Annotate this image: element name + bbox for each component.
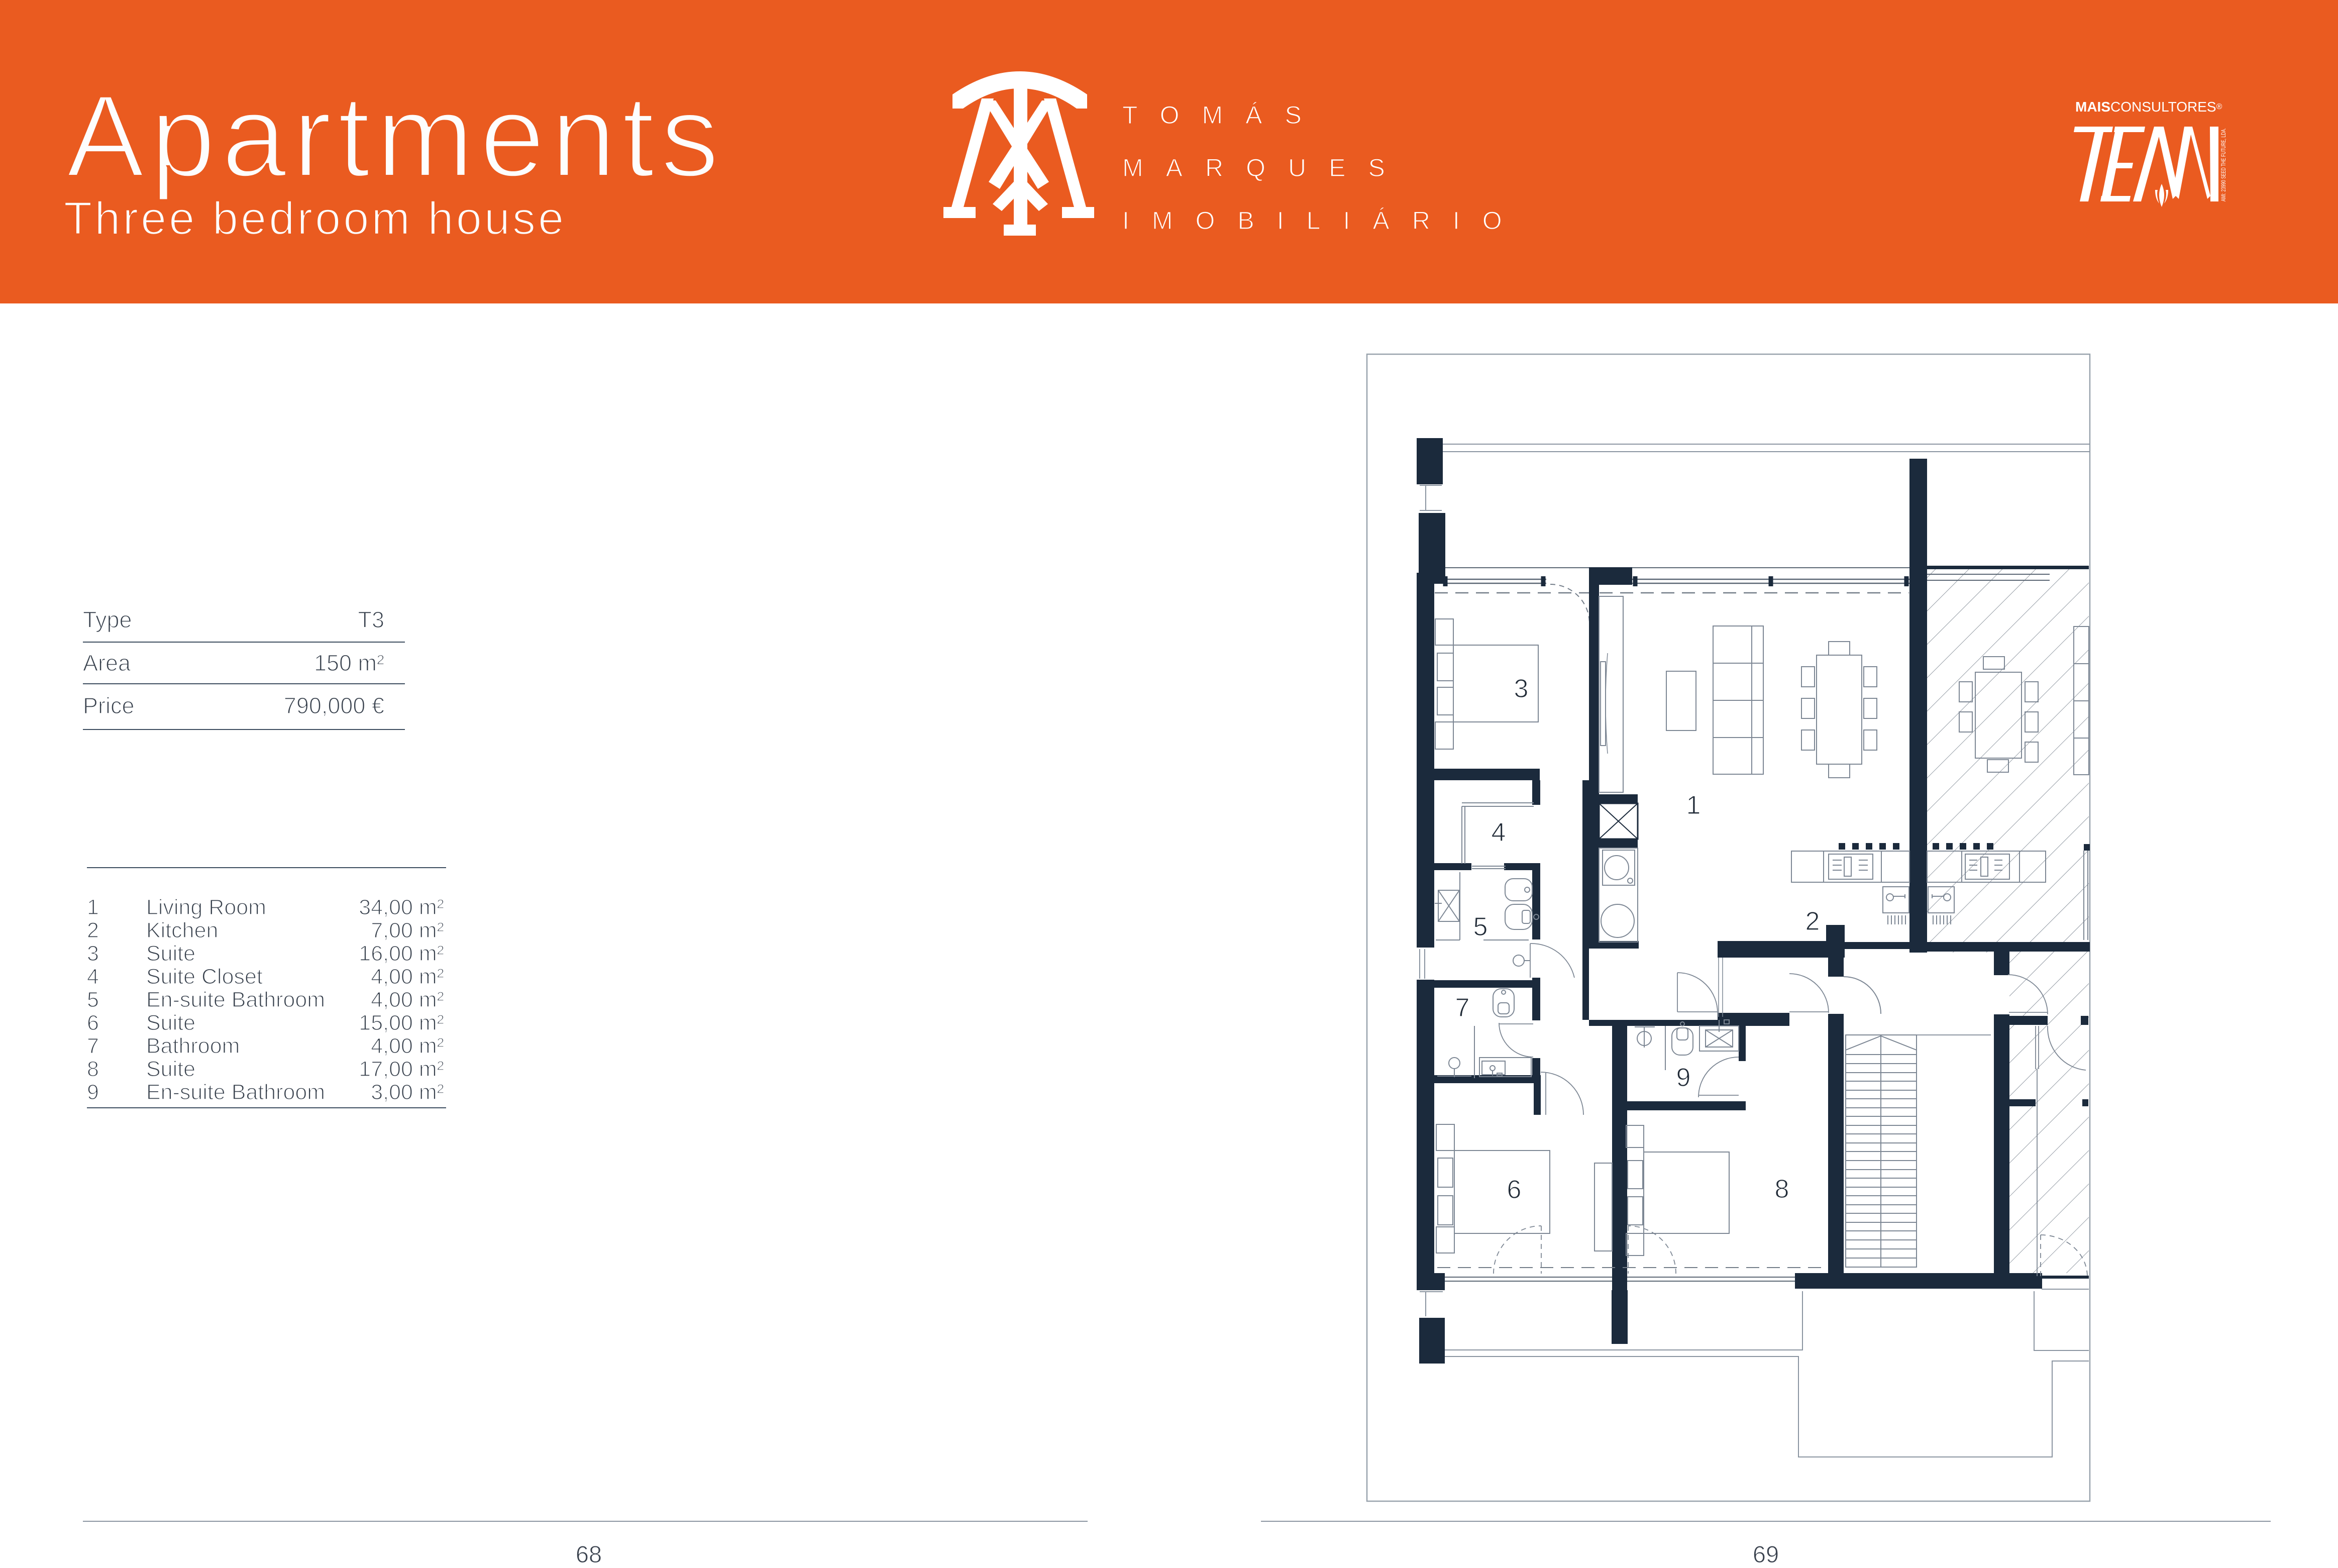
svg-text:4: 4 [1492,818,1506,847]
svg-text:AMI: 23990 SEED THE FUTURE, L: AMI: 23990 SEED THE FUTURE, LDA. [2221,128,2227,201]
svg-text:6: 6 [1507,1175,1522,1204]
svg-text:1: 1 [1686,791,1701,820]
svg-text:5: 5 [1473,912,1488,942]
svg-text:2: 2 [1805,907,1820,936]
svg-text:8: 8 [1775,1175,1789,1204]
svg-text:7: 7 [1455,993,1470,1022]
svg-text:9: 9 [1676,1063,1691,1092]
svg-text:3: 3 [1514,674,1529,703]
